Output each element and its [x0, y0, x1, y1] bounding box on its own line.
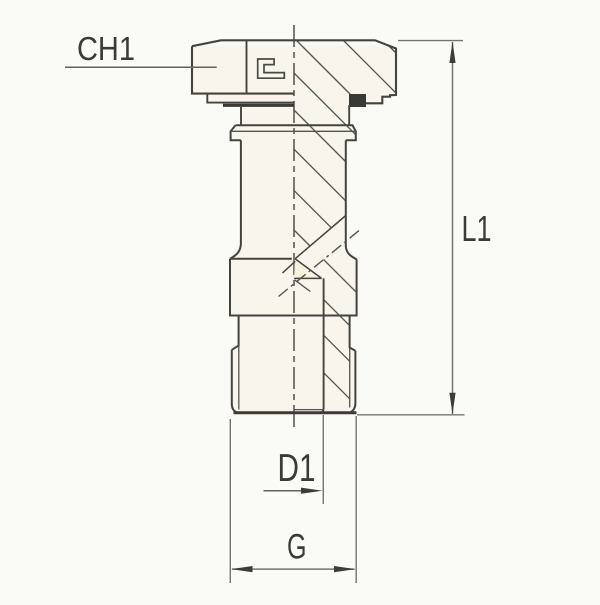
svg-text:CH1: CH1: [77, 30, 135, 67]
svg-text:D1: D1: [278, 447, 316, 490]
svg-text:L1: L1: [462, 208, 492, 249]
svg-text:G: G: [287, 527, 307, 567]
